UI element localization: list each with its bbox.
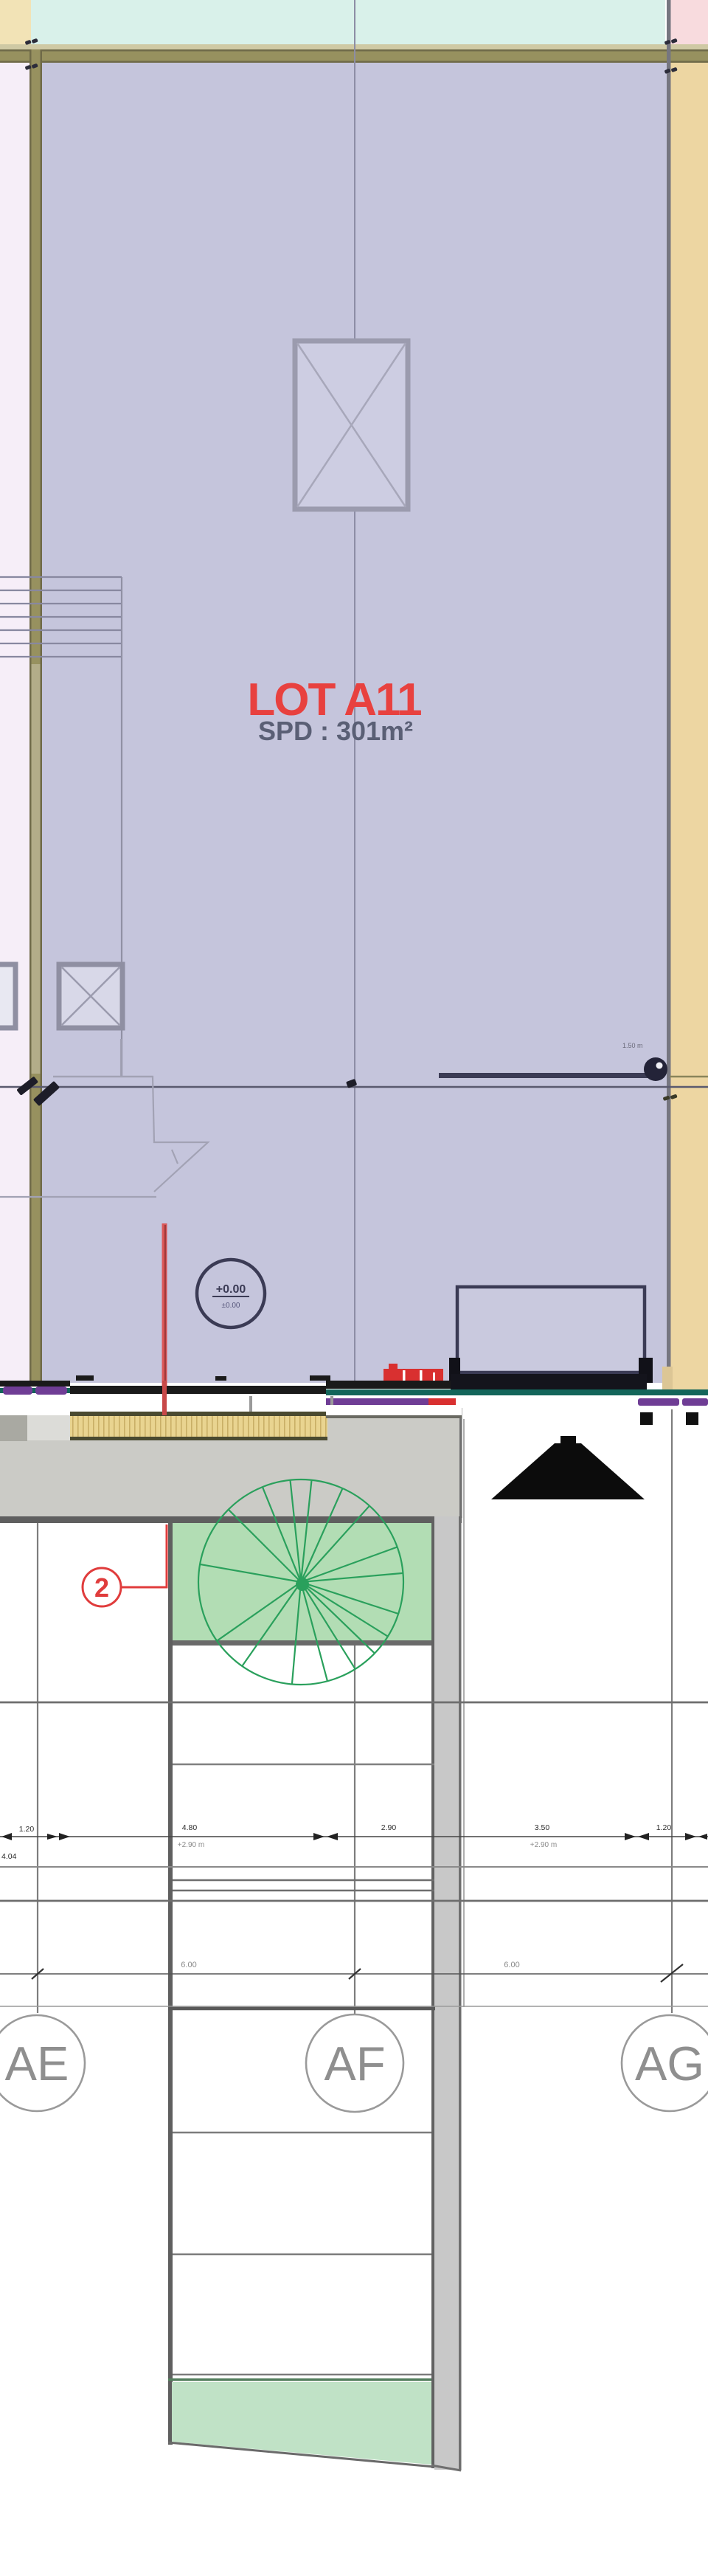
svg-text:AF: AF — [324, 2037, 385, 2090]
svg-text:2.90: 2.90 — [381, 1823, 397, 1832]
svg-text:AE: AE — [5, 2037, 69, 2090]
svg-text:4.80: 4.80 — [182, 1823, 198, 1832]
svg-text:1.20: 1.20 — [656, 1823, 672, 1832]
svg-text:6.00: 6.00 — [181, 1961, 196, 1969]
svg-text:1.50 m: 1.50 m — [622, 1042, 643, 1049]
svg-text:+2.90 m: +2.90 m — [178, 1841, 204, 1849]
svg-text:±0.00: ±0.00 — [222, 1302, 240, 1310]
svg-text:2: 2 — [94, 1572, 109, 1603]
svg-text:SPD : 301m²: SPD : 301m² — [258, 716, 413, 746]
svg-text:3.50: 3.50 — [535, 1823, 550, 1832]
svg-text:1.20: 1.20 — [19, 1825, 35, 1834]
svg-text:4.04: 4.04 — [1, 1852, 17, 1861]
svg-text:+0.00: +0.00 — [216, 1283, 246, 1296]
svg-text:AG: AG — [635, 2037, 704, 2090]
svg-text:+2.90 m: +2.90 m — [530, 1841, 557, 1849]
svg-text:6.00: 6.00 — [504, 1961, 519, 1969]
